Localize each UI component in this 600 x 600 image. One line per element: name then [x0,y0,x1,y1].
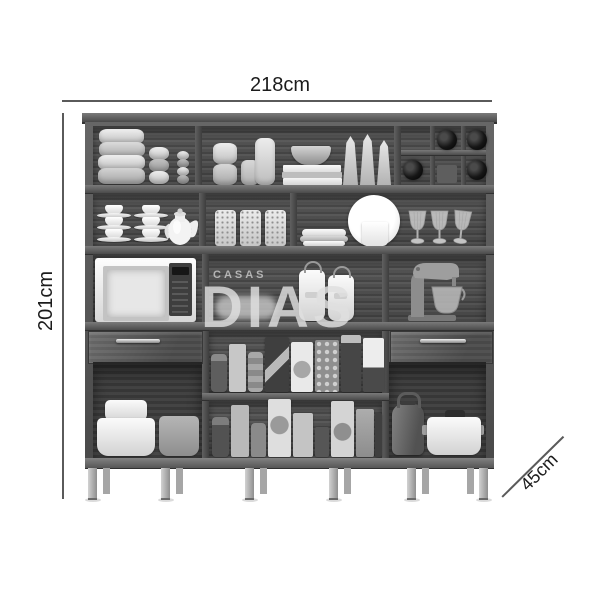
food-box [363,338,384,392]
book [283,178,342,185]
wine-bottle [467,130,487,150]
food-box [331,401,354,457]
right-drawer [390,331,493,364]
cabinet-leg [245,468,254,500]
jug-handle [304,261,322,273]
wine-glass [449,209,474,247]
food-box [356,409,374,457]
decorated-jar [215,210,236,246]
food-box [231,405,249,457]
wine-bottle [467,160,487,180]
food-box [341,335,361,392]
wine-glass [429,210,450,246]
saucer [97,237,131,242]
microwave-display [172,267,189,275]
left-drawer-handle [116,339,160,343]
food-box [265,337,289,392]
cabinet-leg [88,468,97,500]
food-box [375,413,382,457]
cabinet-leg [176,468,183,494]
mug [362,222,388,246]
food-can [248,352,263,392]
stand-mixer [403,256,467,322]
microwave [95,258,196,322]
food-can [212,417,229,457]
book [283,165,341,172]
cabinet-leg [260,468,267,494]
microwave-window [103,266,169,321]
food-box [293,413,313,457]
food-box [229,344,246,392]
leg-shadow [404,498,420,502]
cabinet-leg [467,468,474,494]
cabinet-leg [422,468,429,494]
cabinet-leg [329,468,338,500]
left-drawer [88,331,203,364]
leg-shadow [242,498,258,502]
leg-shadow [158,498,174,502]
decorated-jar [265,210,286,246]
white-pot-with-lid [427,417,481,455]
shelf-divider [290,193,297,246]
depth-dimension-label: 45cm [511,444,568,501]
gray-pot [159,416,199,456]
food-box [268,399,291,457]
leg-shadow [326,498,342,502]
stacked-container [98,168,145,184]
wine-rack-shelf [401,150,486,156]
canister [213,164,237,185]
cabinet-leg [344,468,351,494]
shelf-divider [195,126,202,185]
height-dimension-label: 201cm [37,243,55,359]
food-box [291,342,313,392]
teapot [161,203,203,246]
cabinet-leg [103,468,110,494]
cabinet-leg [161,468,170,500]
canister [213,143,237,164]
shelf-divider [394,126,401,185]
cabinet-leg [407,468,416,500]
width-dimension-label: 218cm [230,74,330,97]
wine-bottle [437,130,457,150]
product-screenshot: 218cm 201cm 45cm DIAS [0,0,600,600]
watermark-dias: DIAS [201,274,356,341]
height-dimension-line [62,113,64,499]
electric-kettle [392,404,424,455]
leg-shadow [476,498,492,502]
food-box [315,340,339,392]
wine-bottle [403,160,423,180]
white-pot-large [97,418,155,456]
candle [255,138,275,185]
right-drawer-handle [420,339,466,343]
width-dimension-line [62,100,492,102]
small-jar [149,171,169,184]
food-jar [251,423,266,457]
wine-glass [407,210,428,246]
cabinet-leg [479,468,488,500]
storage-box [437,165,457,183]
food-can [211,354,227,392]
food-box [315,427,329,457]
spice-jar [177,175,189,184]
leg-shadow [85,498,101,502]
bottom-board [85,458,494,469]
decorated-jar [240,210,261,246]
